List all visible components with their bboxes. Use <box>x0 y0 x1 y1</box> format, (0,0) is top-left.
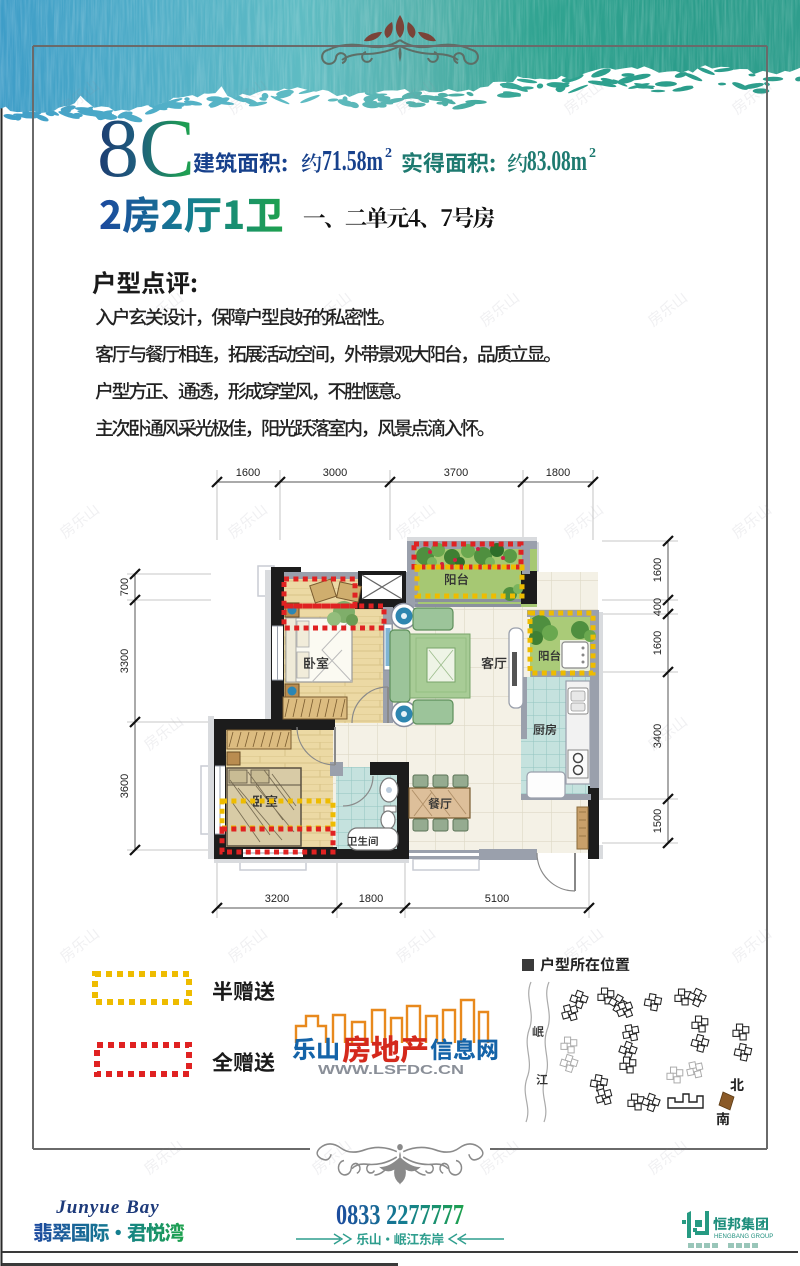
svg-text:1800: 1800 <box>359 893 383 905</box>
svg-text:1500: 1500 <box>652 809 664 833</box>
svg-text:3400: 3400 <box>652 724 664 748</box>
svg-text:400: 400 <box>652 598 664 616</box>
svg-text:2: 2 <box>589 146 596 161</box>
svg-text:3700: 3700 <box>444 467 468 479</box>
svg-text:1600: 1600 <box>652 558 664 582</box>
svg-text:1600: 1600 <box>652 631 664 655</box>
svg-text:2: 2 <box>385 146 392 161</box>
svg-text:71.58m: 71.58m <box>322 146 383 177</box>
svg-text:WWW.LSFDC.CN: WWW.LSFDC.CN <box>318 1062 464 1077</box>
svg-text:3000: 3000 <box>323 467 347 479</box>
svg-text:HENGBANG GROUP: HENGBANG GROUP <box>714 1234 773 1240</box>
svg-text:1800: 1800 <box>546 467 570 479</box>
svg-text:3600: 3600 <box>119 774 131 798</box>
svg-text:5100: 5100 <box>485 893 509 905</box>
svg-text:1600: 1600 <box>236 467 260 479</box>
svg-text:3200: 3200 <box>265 893 289 905</box>
svg-text:Junyue Bay: Junyue Bay <box>55 1197 159 1218</box>
svg-text:8C: 8C <box>97 102 195 195</box>
svg-text:3300: 3300 <box>119 649 131 673</box>
svg-text:700: 700 <box>119 578 131 596</box>
svg-text:83.08m: 83.08m <box>527 146 587 177</box>
svg-text:0833 2277777: 0833 2277777 <box>336 1200 464 1231</box>
